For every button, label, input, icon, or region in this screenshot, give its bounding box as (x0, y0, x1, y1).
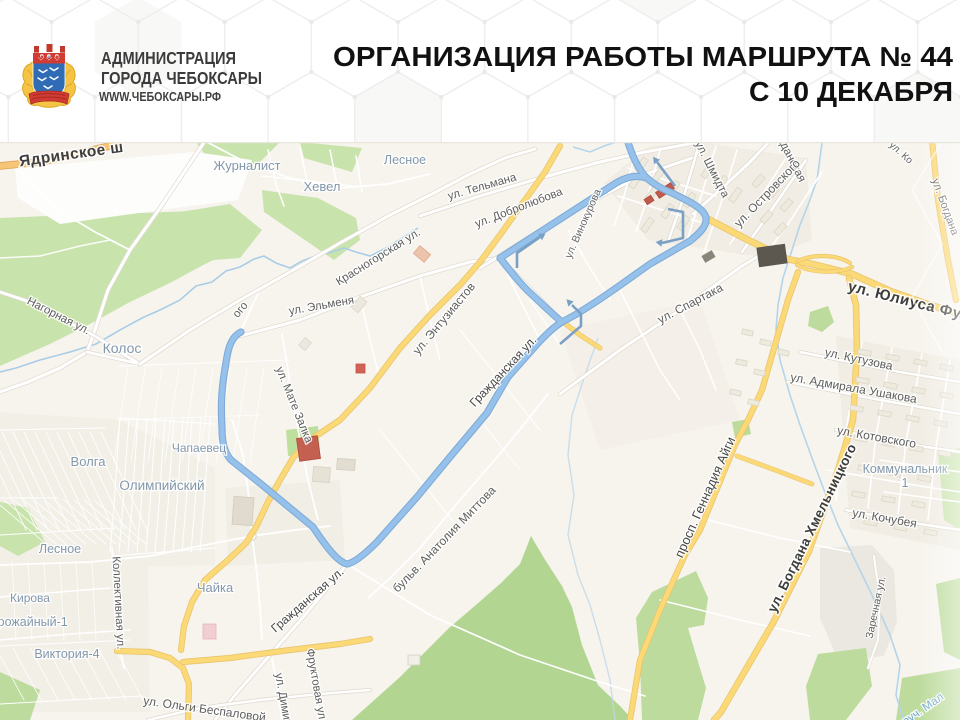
svg-text:Олимпийский: Олимпийский (119, 478, 204, 493)
svg-text:WWW.ЧЕБОКСАРЫ.РФ: WWW.ЧЕБОКСАРЫ.РФ (99, 89, 221, 104)
svg-text:Виктория-4: Виктория-4 (34, 647, 99, 661)
svg-text:Кирова: Кирова (10, 591, 50, 605)
svg-text:АДМИНИСТРАЦИЯ: АДМИНИСТРАЦИЯ (101, 48, 236, 68)
svg-text:С 10 ДЕКАБРЯ: С 10 ДЕКАБРЯ (749, 76, 953, 107)
svg-text:ОРГАНИЗАЦИЯ РАБОТЫ МАРШРУТА №: ОРГАНИЗАЦИЯ РАБОТЫ МАРШРУТА № 44 (333, 41, 954, 72)
svg-text:Колос: Колос (103, 340, 142, 356)
svg-text:1: 1 (902, 476, 909, 490)
svg-text:Журналист: Журналист (213, 158, 280, 173)
svg-text:Урожайный-1: Урожайный-1 (0, 615, 68, 629)
svg-text:Хевел: Хевел (303, 179, 340, 194)
svg-text:Лесное: Лесное (384, 153, 426, 167)
svg-text:Чайка: Чайка (197, 580, 234, 595)
svg-text:Волга: Волга (71, 454, 107, 469)
svg-text:Лесное: Лесное (39, 542, 81, 556)
svg-text:Чапаевец: Чапаевец (172, 441, 226, 455)
svg-text:ГОРОДА ЧЕБОКСАРЫ: ГОРОДА ЧЕБОКСАРЫ (101, 68, 262, 88)
